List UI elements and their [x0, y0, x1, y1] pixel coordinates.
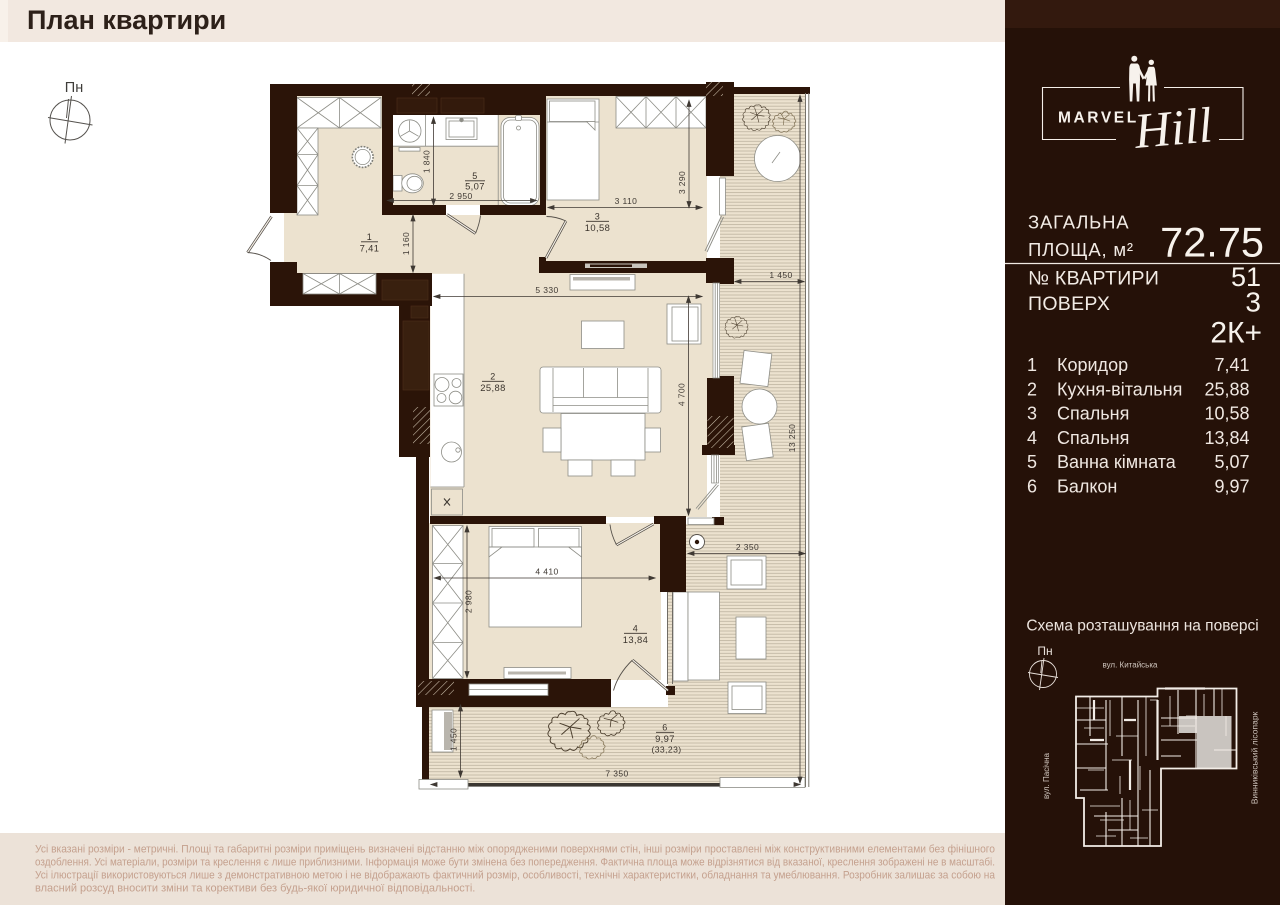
svg-text:Усі ілюстрації використовуютьс: Усі ілюстрації використовуються лише з д…	[35, 870, 996, 882]
svg-text:5 330: 5 330	[535, 285, 558, 295]
svg-text:2: 2	[1027, 379, 1037, 399]
svg-text:Пн: Пн	[65, 80, 83, 96]
svg-text:13,84: 13,84	[623, 634, 648, 645]
svg-text:Hill: Hill	[1131, 96, 1214, 159]
svg-text:1 840: 1 840	[422, 150, 432, 173]
svg-text:Винниківський лісопарк: Винниківський лісопарк	[1250, 711, 1260, 804]
svg-text:7,41: 7,41	[360, 243, 380, 254]
svg-text:Спальня: Спальня	[1057, 428, 1129, 448]
svg-text:5,07: 5,07	[465, 181, 485, 192]
svg-text:2 350: 2 350	[736, 542, 759, 552]
svg-text:2 950: 2 950	[449, 191, 472, 201]
svg-text:1: 1	[367, 232, 372, 242]
svg-text:6: 6	[1027, 477, 1037, 497]
svg-text:3: 3	[1027, 404, 1037, 424]
svg-text:7 350: 7 350	[605, 769, 628, 779]
svg-text:4 410: 4 410	[535, 567, 558, 577]
svg-text:Усі вказані розміри - метричні: Усі вказані розміри - метричні. Площі та…	[35, 844, 995, 856]
svg-text:3 110: 3 110	[615, 196, 638, 206]
svg-text:4 700: 4 700	[677, 383, 687, 406]
svg-text:9,97: 9,97	[1214, 477, 1249, 497]
svg-text:Ванна кімната: Ванна кімната	[1057, 452, 1177, 472]
svg-text:Пн: Пн	[1037, 644, 1052, 658]
svg-text:ПЛОЩА, м²: ПЛОЩА, м²	[1028, 239, 1134, 260]
svg-text:4: 4	[633, 624, 638, 634]
svg-text:оздоблення. Усі матеріали, роз: оздоблення. Усі матеріали, розміри та кр…	[35, 857, 995, 869]
svg-text:2: 2	[490, 372, 495, 382]
svg-text:вул. Пасічна: вул. Пасічна	[1042, 752, 1051, 799]
svg-text:10,58: 10,58	[585, 222, 610, 233]
svg-text:3: 3	[1245, 287, 1261, 318]
svg-text:№ КВАРТИРИ: № КВАРТИРИ	[1028, 268, 1159, 290]
svg-text:5: 5	[472, 171, 477, 181]
svg-text:План квартири: План квартири	[27, 5, 226, 35]
svg-text:13,84: 13,84	[1204, 428, 1249, 448]
svg-text:25,88: 25,88	[1204, 379, 1249, 399]
svg-text:ЗАГАЛЬНА: ЗАГАЛЬНА	[1028, 212, 1129, 233]
svg-text:3 290: 3 290	[677, 171, 687, 194]
svg-text:Схема розташування на поверсі: Схема розташування на поверсі	[1026, 618, 1258, 635]
svg-text:10,58: 10,58	[1204, 404, 1249, 424]
svg-text:5: 5	[1027, 452, 1037, 472]
svg-text:2 980: 2 980	[464, 590, 474, 613]
svg-text:13 250: 13 250	[787, 424, 797, 452]
svg-text:Коридор: Коридор	[1057, 355, 1128, 375]
svg-text:Балкон: Балкон	[1057, 477, 1117, 497]
svg-text:25,88: 25,88	[480, 382, 505, 393]
svg-text:1: 1	[1027, 355, 1037, 375]
svg-text:1 160: 1 160	[401, 232, 411, 255]
svg-text:6: 6	[662, 723, 667, 733]
svg-text:5,07: 5,07	[1214, 452, 1249, 472]
svg-text:Кухня-вітальня: Кухня-вітальня	[1057, 379, 1182, 399]
svg-text:власний розсуд вносити зміни т: власний розсуд вносити зміни та коректив…	[35, 883, 475, 895]
svg-text:вул. Китайська: вул. Китайська	[1103, 661, 1158, 670]
svg-text:2К+: 2К+	[1210, 317, 1262, 350]
svg-text:Спальня: Спальня	[1057, 404, 1129, 424]
svg-text:ПОВЕРХ: ПОВЕРХ	[1028, 293, 1110, 315]
svg-text:(33,23): (33,23)	[651, 745, 681, 755]
svg-text:7,41: 7,41	[1214, 355, 1249, 375]
svg-text:1 450: 1 450	[769, 270, 792, 280]
svg-text:1 450: 1 450	[449, 728, 459, 751]
svg-text:4: 4	[1027, 428, 1037, 448]
svg-text:72.75: 72.75	[1160, 219, 1264, 266]
svg-text:MARVEL: MARVEL	[1058, 110, 1139, 127]
svg-text:3: 3	[595, 212, 600, 222]
svg-text:9,97: 9,97	[655, 733, 675, 744]
